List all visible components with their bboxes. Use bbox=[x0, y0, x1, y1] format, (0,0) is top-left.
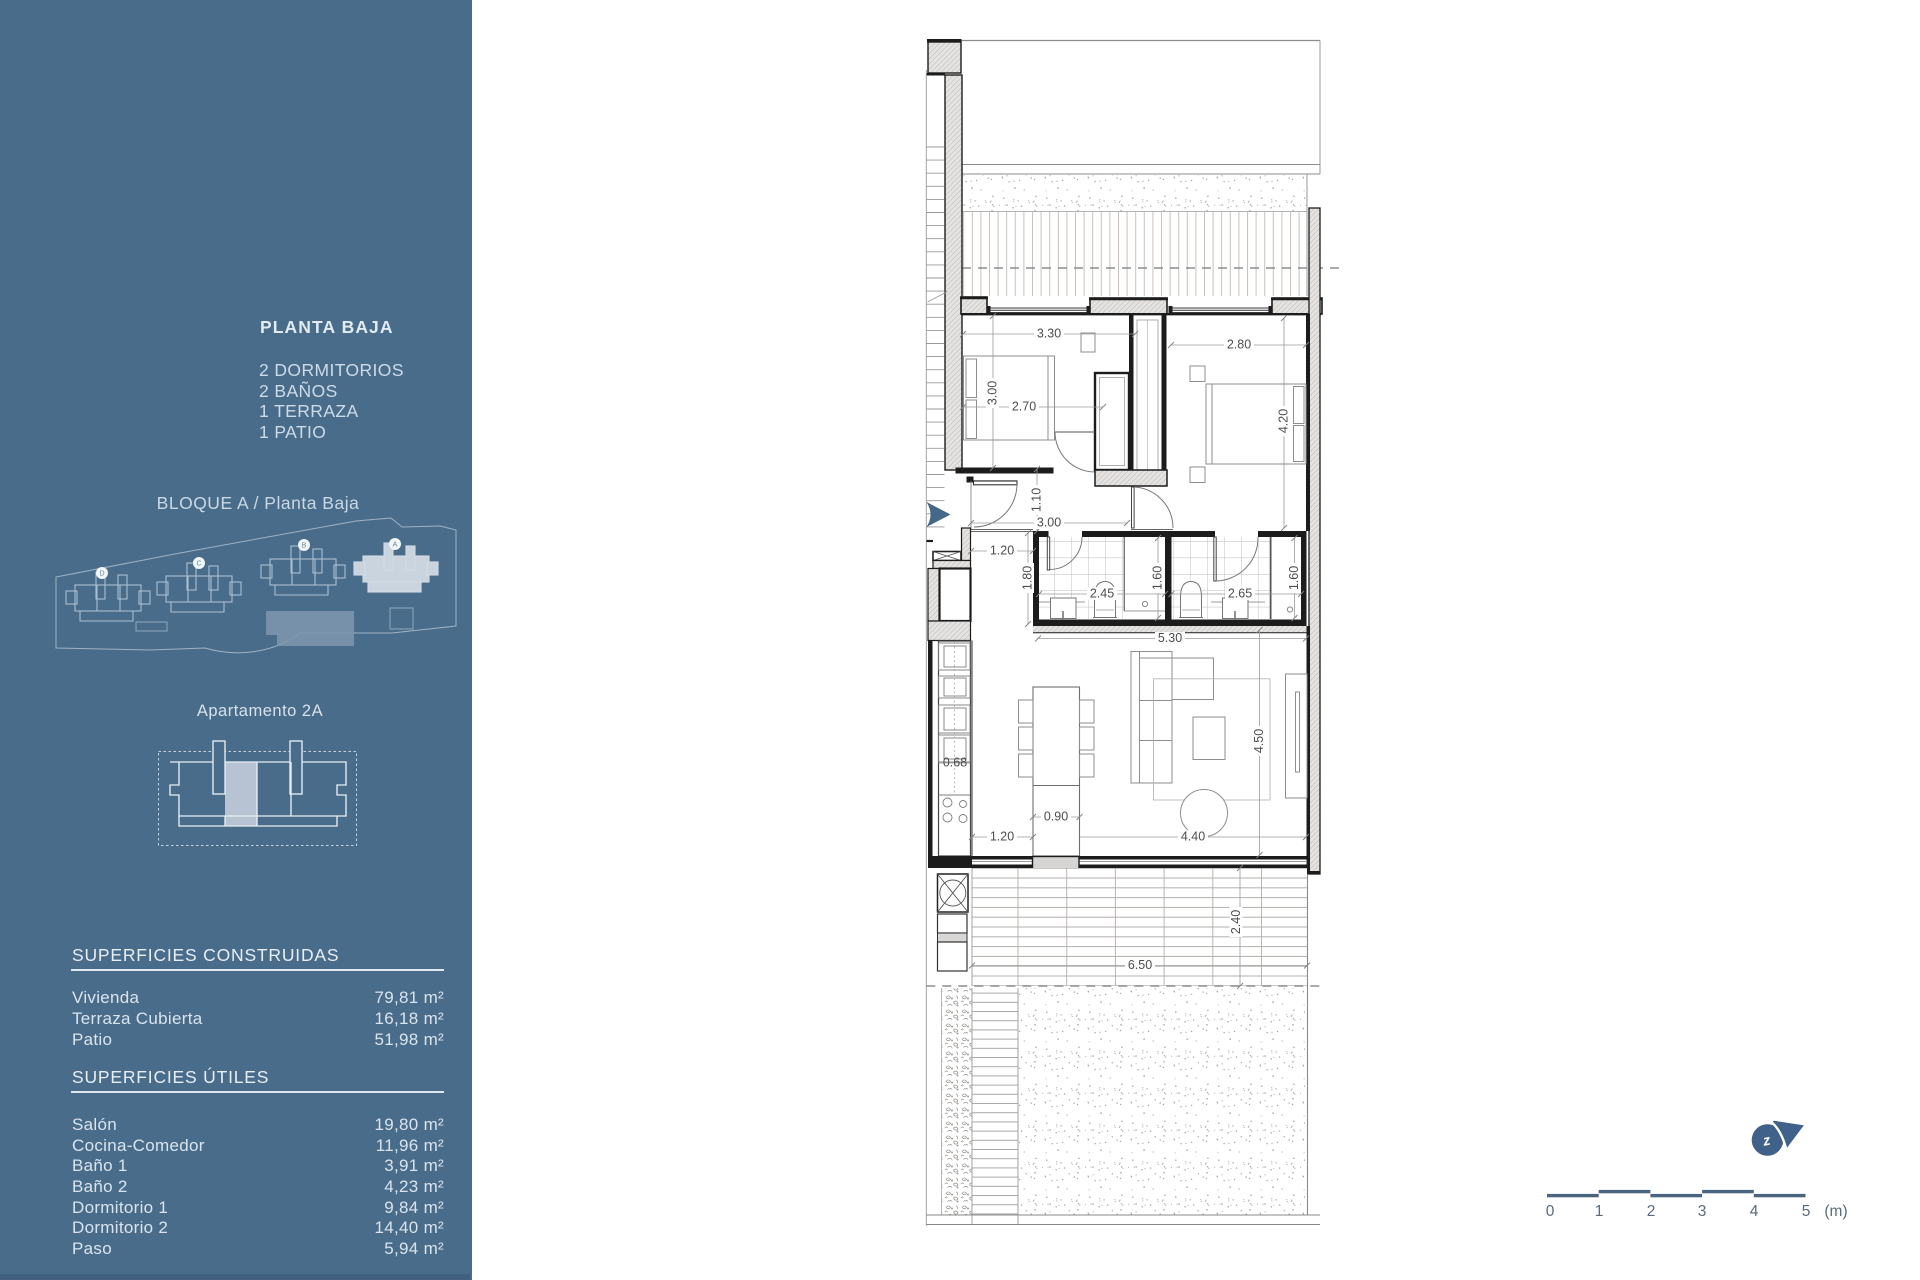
svg-text:1.80: 1.80 bbox=[1021, 566, 1035, 590]
svg-text:4.40: 4.40 bbox=[1181, 830, 1205, 844]
svg-text:C: C bbox=[196, 561, 201, 568]
svg-text:1: 1 bbox=[1595, 1203, 1604, 1220]
svg-text:3.00: 3.00 bbox=[986, 381, 1000, 405]
svg-text:1.20: 1.20 bbox=[990, 544, 1014, 558]
svg-text:2: 2 bbox=[1647, 1203, 1656, 1220]
svg-text:D: D bbox=[99, 571, 104, 578]
svg-text:1.60: 1.60 bbox=[1151, 566, 1165, 590]
svg-text:0: 0 bbox=[1546, 1203, 1555, 1220]
svg-text:1.10: 1.10 bbox=[1030, 488, 1044, 512]
svg-text:6.50: 6.50 bbox=[1128, 958, 1152, 972]
svg-text:3.30: 3.30 bbox=[1037, 327, 1061, 341]
svg-text:2.65: 2.65 bbox=[1228, 587, 1252, 601]
svg-text:(m): (m) bbox=[1824, 1203, 1847, 1220]
svg-text:5: 5 bbox=[1802, 1203, 1811, 1220]
svg-text:1.20: 1.20 bbox=[990, 830, 1014, 844]
svg-text:0.90: 0.90 bbox=[1044, 810, 1068, 824]
svg-text:2.80: 2.80 bbox=[1227, 338, 1251, 352]
svg-text:4.50: 4.50 bbox=[1252, 729, 1266, 753]
svg-text:2.45: 2.45 bbox=[1090, 587, 1114, 601]
svg-text:2.40: 2.40 bbox=[1229, 910, 1243, 934]
svg-text:0.68: 0.68 bbox=[943, 756, 967, 770]
svg-text:4: 4 bbox=[1750, 1203, 1759, 1220]
svg-text:B: B bbox=[302, 543, 307, 550]
svg-text:3: 3 bbox=[1698, 1203, 1707, 1220]
svg-text:3.00: 3.00 bbox=[1037, 516, 1061, 530]
svg-text:5.30: 5.30 bbox=[1158, 631, 1182, 645]
svg-text:1.60: 1.60 bbox=[1287, 566, 1301, 590]
svg-text:A: A bbox=[393, 542, 398, 549]
svg-text:4.20: 4.20 bbox=[1277, 409, 1291, 433]
svg-text:2.70: 2.70 bbox=[1012, 400, 1036, 414]
